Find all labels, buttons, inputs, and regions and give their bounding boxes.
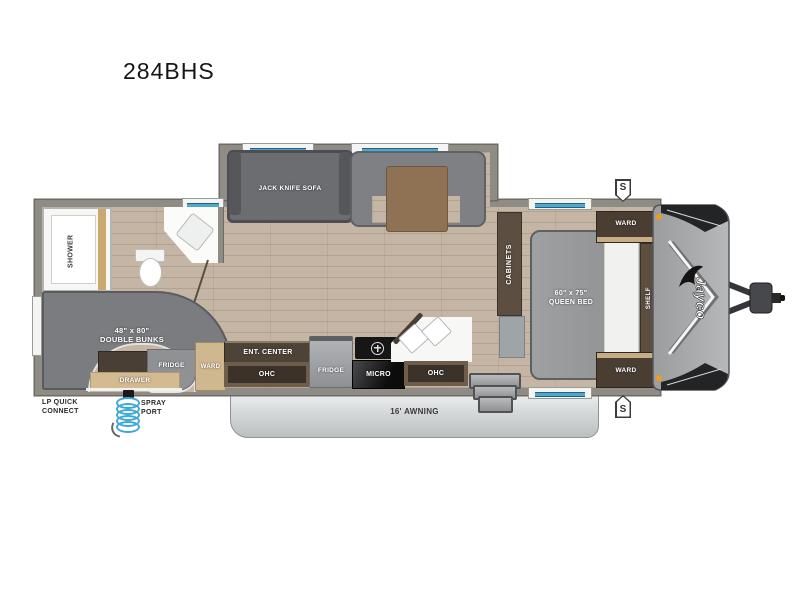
speaker-badge-bottom: S [615, 395, 631, 418]
ward-top: WARD [596, 211, 656, 243]
spray-label-line1: SPRAY [141, 399, 166, 408]
bedroom-cabinets: CABINETS [497, 212, 522, 316]
coupler-tip [780, 295, 785, 301]
sofa-label: JACK KNIFE SOFA [238, 183, 342, 193]
rear-side-window [32, 296, 42, 356]
ent-center-label: ENT. CENTER [243, 349, 292, 356]
bedroom-dresser [499, 316, 525, 358]
ent-center: ENT. CENTER [224, 341, 312, 363]
lp-quick-connect-label: LP QUICK CONNECT [42, 398, 112, 416]
bed-label: 60" x 75" QUEEN BED [535, 288, 607, 308]
bunk-base-trim [86, 388, 182, 391]
shower: SHOWER [42, 207, 112, 292]
bedroom-window-top [528, 198, 592, 210]
micro-label: MICRO [366, 371, 391, 378]
bedroom-window-bottom [528, 387, 592, 399]
brand-logo-text: Jayco [692, 277, 709, 320]
model-title: 284BHS [123, 58, 215, 85]
burner-icon [371, 342, 384, 355]
kitchen-ward-label: WARD [201, 364, 221, 370]
ward-bottom: WARD [596, 352, 656, 388]
lp-label-line2: CONNECT [42, 407, 79, 416]
ohc-right-label: OHC [428, 370, 444, 377]
bunk-drawer: DRAWER [90, 372, 180, 389]
ohc-right: OHC [404, 361, 468, 386]
shower-label: SHOWER [66, 221, 76, 281]
window-glass [535, 392, 585, 397]
floorplan-canvas: 284BHS 16' AWNING JACK KNIFE SOFA SHOWER [0, 0, 800, 600]
entry-step-3 [478, 396, 513, 413]
speaker-badge-letter: S [617, 397, 630, 417]
speaker-badge-letter: S [617, 181, 630, 201]
ohc-left-label: OHC [259, 371, 275, 378]
awning: 16' AWNING [230, 393, 599, 438]
jack-knife-sofa: JACK KNIFE SOFA [227, 150, 353, 223]
marker-light-top [656, 214, 662, 220]
spray-port-label: SPRAY PORT [141, 399, 185, 417]
drawer-label: DRAWER [120, 377, 151, 384]
kitchen-fridge-label: FRIDGE [311, 365, 351, 375]
sink-basin [175, 212, 214, 251]
tongue-jack [750, 283, 772, 313]
ward-top-label: WARD [615, 220, 636, 227]
kitchen-ward: WARD [195, 342, 226, 391]
kitchen-fridge: FRIDGE [309, 336, 353, 388]
coupler [772, 293, 781, 303]
speaker-badge-top: S [615, 179, 631, 202]
window-glass [535, 203, 585, 208]
dinette-table [386, 166, 448, 232]
marker-light-bottom [656, 375, 662, 381]
bed-name-label: QUEEN BED [549, 298, 593, 307]
awning-label: 16' AWNING [231, 406, 598, 416]
bunks-label: 48" x 80" DOUBLE BUNKS [62, 325, 202, 345]
lp-label-line1: LP QUICK [42, 398, 78, 407]
ohc-left: OHC [224, 362, 310, 387]
bunk-fridge-label: FRIDGE [150, 360, 193, 370]
bunks-size-label: 48" x 80" [115, 326, 150, 335]
toilet-bowl [139, 258, 162, 287]
spray-label-line2: PORT [141, 408, 162, 417]
front-cap: Jayco [649, 201, 733, 394]
spray-hose-end [108, 422, 123, 437]
bed-size-label: 60" x 75" [555, 289, 588, 298]
ward-bottom-label: WARD [615, 367, 636, 374]
microwave: MICRO [352, 360, 405, 389]
cabinets-label: CABINETS [506, 244, 513, 285]
shower-trim [98, 209, 106, 290]
